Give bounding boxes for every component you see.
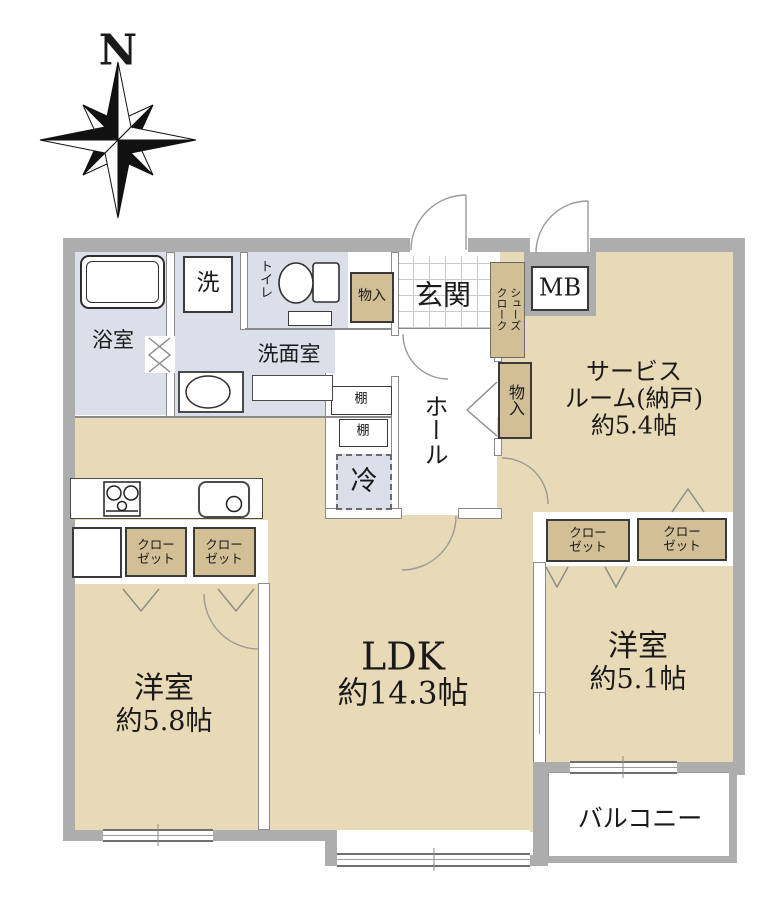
ldk-size: 約14.3帖 xyxy=(337,677,468,712)
closet-west-2-label: クロー ゼット xyxy=(205,538,243,566)
closet-line: クロー xyxy=(569,525,607,540)
floor-plan: N xyxy=(0,0,766,909)
washroom-label: 洗面室 xyxy=(258,343,321,367)
closet-east-1-label: クロー ゼット xyxy=(569,526,607,554)
shoe-closet-label: シューズ クローク xyxy=(494,287,522,331)
wall-bath-washroom-2 xyxy=(166,372,175,417)
compass-north-label: N xyxy=(99,26,137,73)
wall-toilet-left xyxy=(240,252,248,330)
service-room-label-2: ルーム(納戸) xyxy=(565,386,703,413)
wall-balcony-right xyxy=(729,762,737,863)
window-bedroom-west xyxy=(103,829,213,842)
wall-top xyxy=(63,238,745,252)
bath-door-gap xyxy=(145,336,175,373)
washbasin-box xyxy=(178,371,244,413)
washer-label: 洗 xyxy=(197,271,220,297)
wall-serviceroom-left2 xyxy=(494,438,502,456)
wall-toilet-bottom xyxy=(245,328,395,330)
wall-bedroomwest-ldk xyxy=(258,583,270,830)
service-room-label-3: 約5.4帖 xyxy=(591,413,677,440)
bedroom-west-size: 約5.8帖 xyxy=(116,707,213,737)
meter-box-label: MB xyxy=(539,275,581,302)
shelf1-label: 棚 xyxy=(354,393,367,408)
closet-west-1-label: クロー ゼット xyxy=(137,538,175,566)
hall-storage-label: 物入 xyxy=(505,384,525,416)
shelf2-label: 棚 xyxy=(356,425,369,440)
bathtub xyxy=(80,255,165,309)
toilet-label: トイレ xyxy=(256,260,272,299)
bedroom-west-name: 洋室 xyxy=(134,672,194,706)
bath-label: 浴室 xyxy=(92,329,134,353)
entrance-storage-label: 物入 xyxy=(358,289,386,305)
fridge-label: 冷 xyxy=(351,467,378,497)
closet-line: ゼット xyxy=(205,551,243,566)
hall-label: ホール xyxy=(419,394,449,466)
bedroom-east-size: 約5.1帖 xyxy=(590,665,687,695)
window-ldk xyxy=(337,853,530,867)
wall-ldk-bedroomeast xyxy=(533,562,546,693)
toilet-shelf xyxy=(288,311,332,326)
wall-balcony-bottom xyxy=(546,856,737,863)
balcony-label: バルコニー xyxy=(578,805,703,833)
closet-line: クロー xyxy=(137,537,175,552)
closet-line: クロー xyxy=(663,524,701,539)
closet-line: ゼット xyxy=(137,551,175,566)
closet-line: ゼット xyxy=(663,538,701,553)
closet-east-2-label: クロー ゼット xyxy=(663,525,701,553)
entrance-door-gap xyxy=(410,238,468,252)
entrance-label: 玄関 xyxy=(415,279,471,310)
window-bedroom-east-balcony xyxy=(570,761,677,774)
porch-door-gap xyxy=(530,238,590,252)
wall-washroom-kitchen xyxy=(75,416,391,418)
wall-bath-washroom xyxy=(166,252,175,337)
service-room-label-1: サービス xyxy=(586,359,682,386)
west-cabinet-box xyxy=(72,527,122,578)
kitchen-sink xyxy=(198,481,250,518)
sliding-door-bedroom-east xyxy=(533,693,546,762)
bedroom-east-name: 洋室 xyxy=(608,630,668,664)
wall-balcony-left xyxy=(533,762,548,866)
ldk-name: LDK xyxy=(361,636,445,679)
wall-right xyxy=(733,238,745,775)
wall-hall-left-lower xyxy=(391,376,399,519)
closet-line: クロー xyxy=(205,537,243,552)
washroom-counter xyxy=(252,375,333,401)
closet-line: ゼット xyxy=(569,539,607,554)
wall-hall-bottom-b xyxy=(458,508,502,519)
compass-rose-icon xyxy=(38,60,198,220)
